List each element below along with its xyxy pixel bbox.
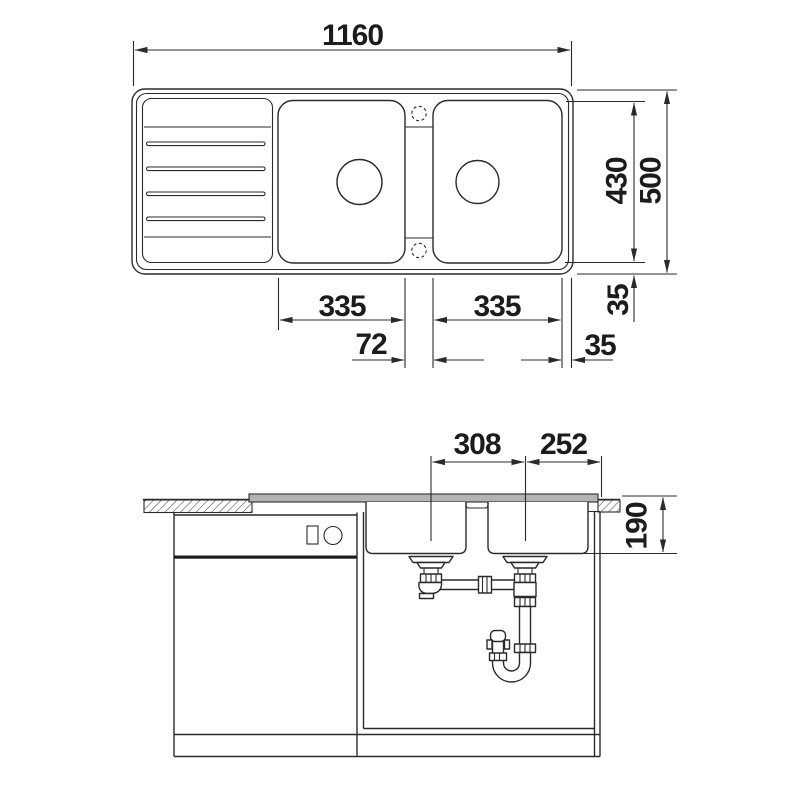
dimension-bowl-widths: 335 335 72 35 <box>279 278 616 368</box>
countertop-hatch-left <box>144 500 252 513</box>
drainboard-ridge <box>147 167 266 171</box>
dim-rim-bottom-label: 35 <box>602 284 635 316</box>
countertop-hatch-right <box>598 500 620 512</box>
dim-divider-width-label: 72 <box>355 328 387 361</box>
sink-rim-step <box>137 94 569 270</box>
dim-bowl2-width-label: 335 <box>473 290 520 323</box>
dim-drain-to-edge-label: 252 <box>540 428 587 461</box>
bowl-right <box>433 101 562 264</box>
bowl-right-section <box>488 502 588 554</box>
bowl-left <box>278 101 405 264</box>
drainboard <box>143 99 273 263</box>
drawing-canvas: 1160 430 500 35 335 335 <box>0 0 800 800</box>
pipe-coupling <box>479 577 492 594</box>
dim-bowl-depth-label: 190 <box>621 502 654 549</box>
connecting-pipe <box>436 580 516 590</box>
dishwasher-panel-gap <box>174 556 357 559</box>
drainboard-ridge <box>147 142 266 146</box>
top-view: 1160 430 500 35 335 335 <box>132 19 677 368</box>
drain-assembly-right <box>503 557 547 597</box>
drainboard-ridge <box>147 217 266 221</box>
dishwasher-control-knob <box>324 527 342 545</box>
sink-technical-drawing: 1160 430 500 35 335 335 <box>0 0 800 800</box>
drain-assembly-left <box>409 557 453 599</box>
dim-rim-right-label: 35 <box>584 329 616 362</box>
tap-hole-bottom <box>412 243 426 257</box>
dim-depth-inner-label: 430 <box>601 157 634 204</box>
drainboard-ridge <box>147 192 266 196</box>
sink-outline <box>132 89 573 274</box>
section-view: 308 252 190 <box>143 428 677 757</box>
drain-left <box>337 160 382 205</box>
dimension-depths: 430 500 <box>565 90 677 274</box>
s-trap <box>487 598 536 683</box>
dim-drain-spacing-label: 308 <box>453 428 500 461</box>
dishwasher-control-button <box>307 526 318 544</box>
sink-rim-section <box>249 494 598 502</box>
waste-plumbing <box>409 557 547 683</box>
tap-hole-top <box>412 106 426 120</box>
dim-overall-width-label: 1160 <box>322 19 383 52</box>
dimension-overall-width: 1160 <box>134 19 572 86</box>
dim-bowl1-width-label: 335 <box>318 290 365 323</box>
center-divider <box>406 106 433 257</box>
dim-depth-overall-label: 500 <box>635 157 668 204</box>
drain-right <box>456 161 499 204</box>
bowl-divider-section <box>466 502 488 508</box>
bowl-left-section <box>366 502 466 554</box>
dimension-rim-bottom: 35 <box>602 276 635 323</box>
